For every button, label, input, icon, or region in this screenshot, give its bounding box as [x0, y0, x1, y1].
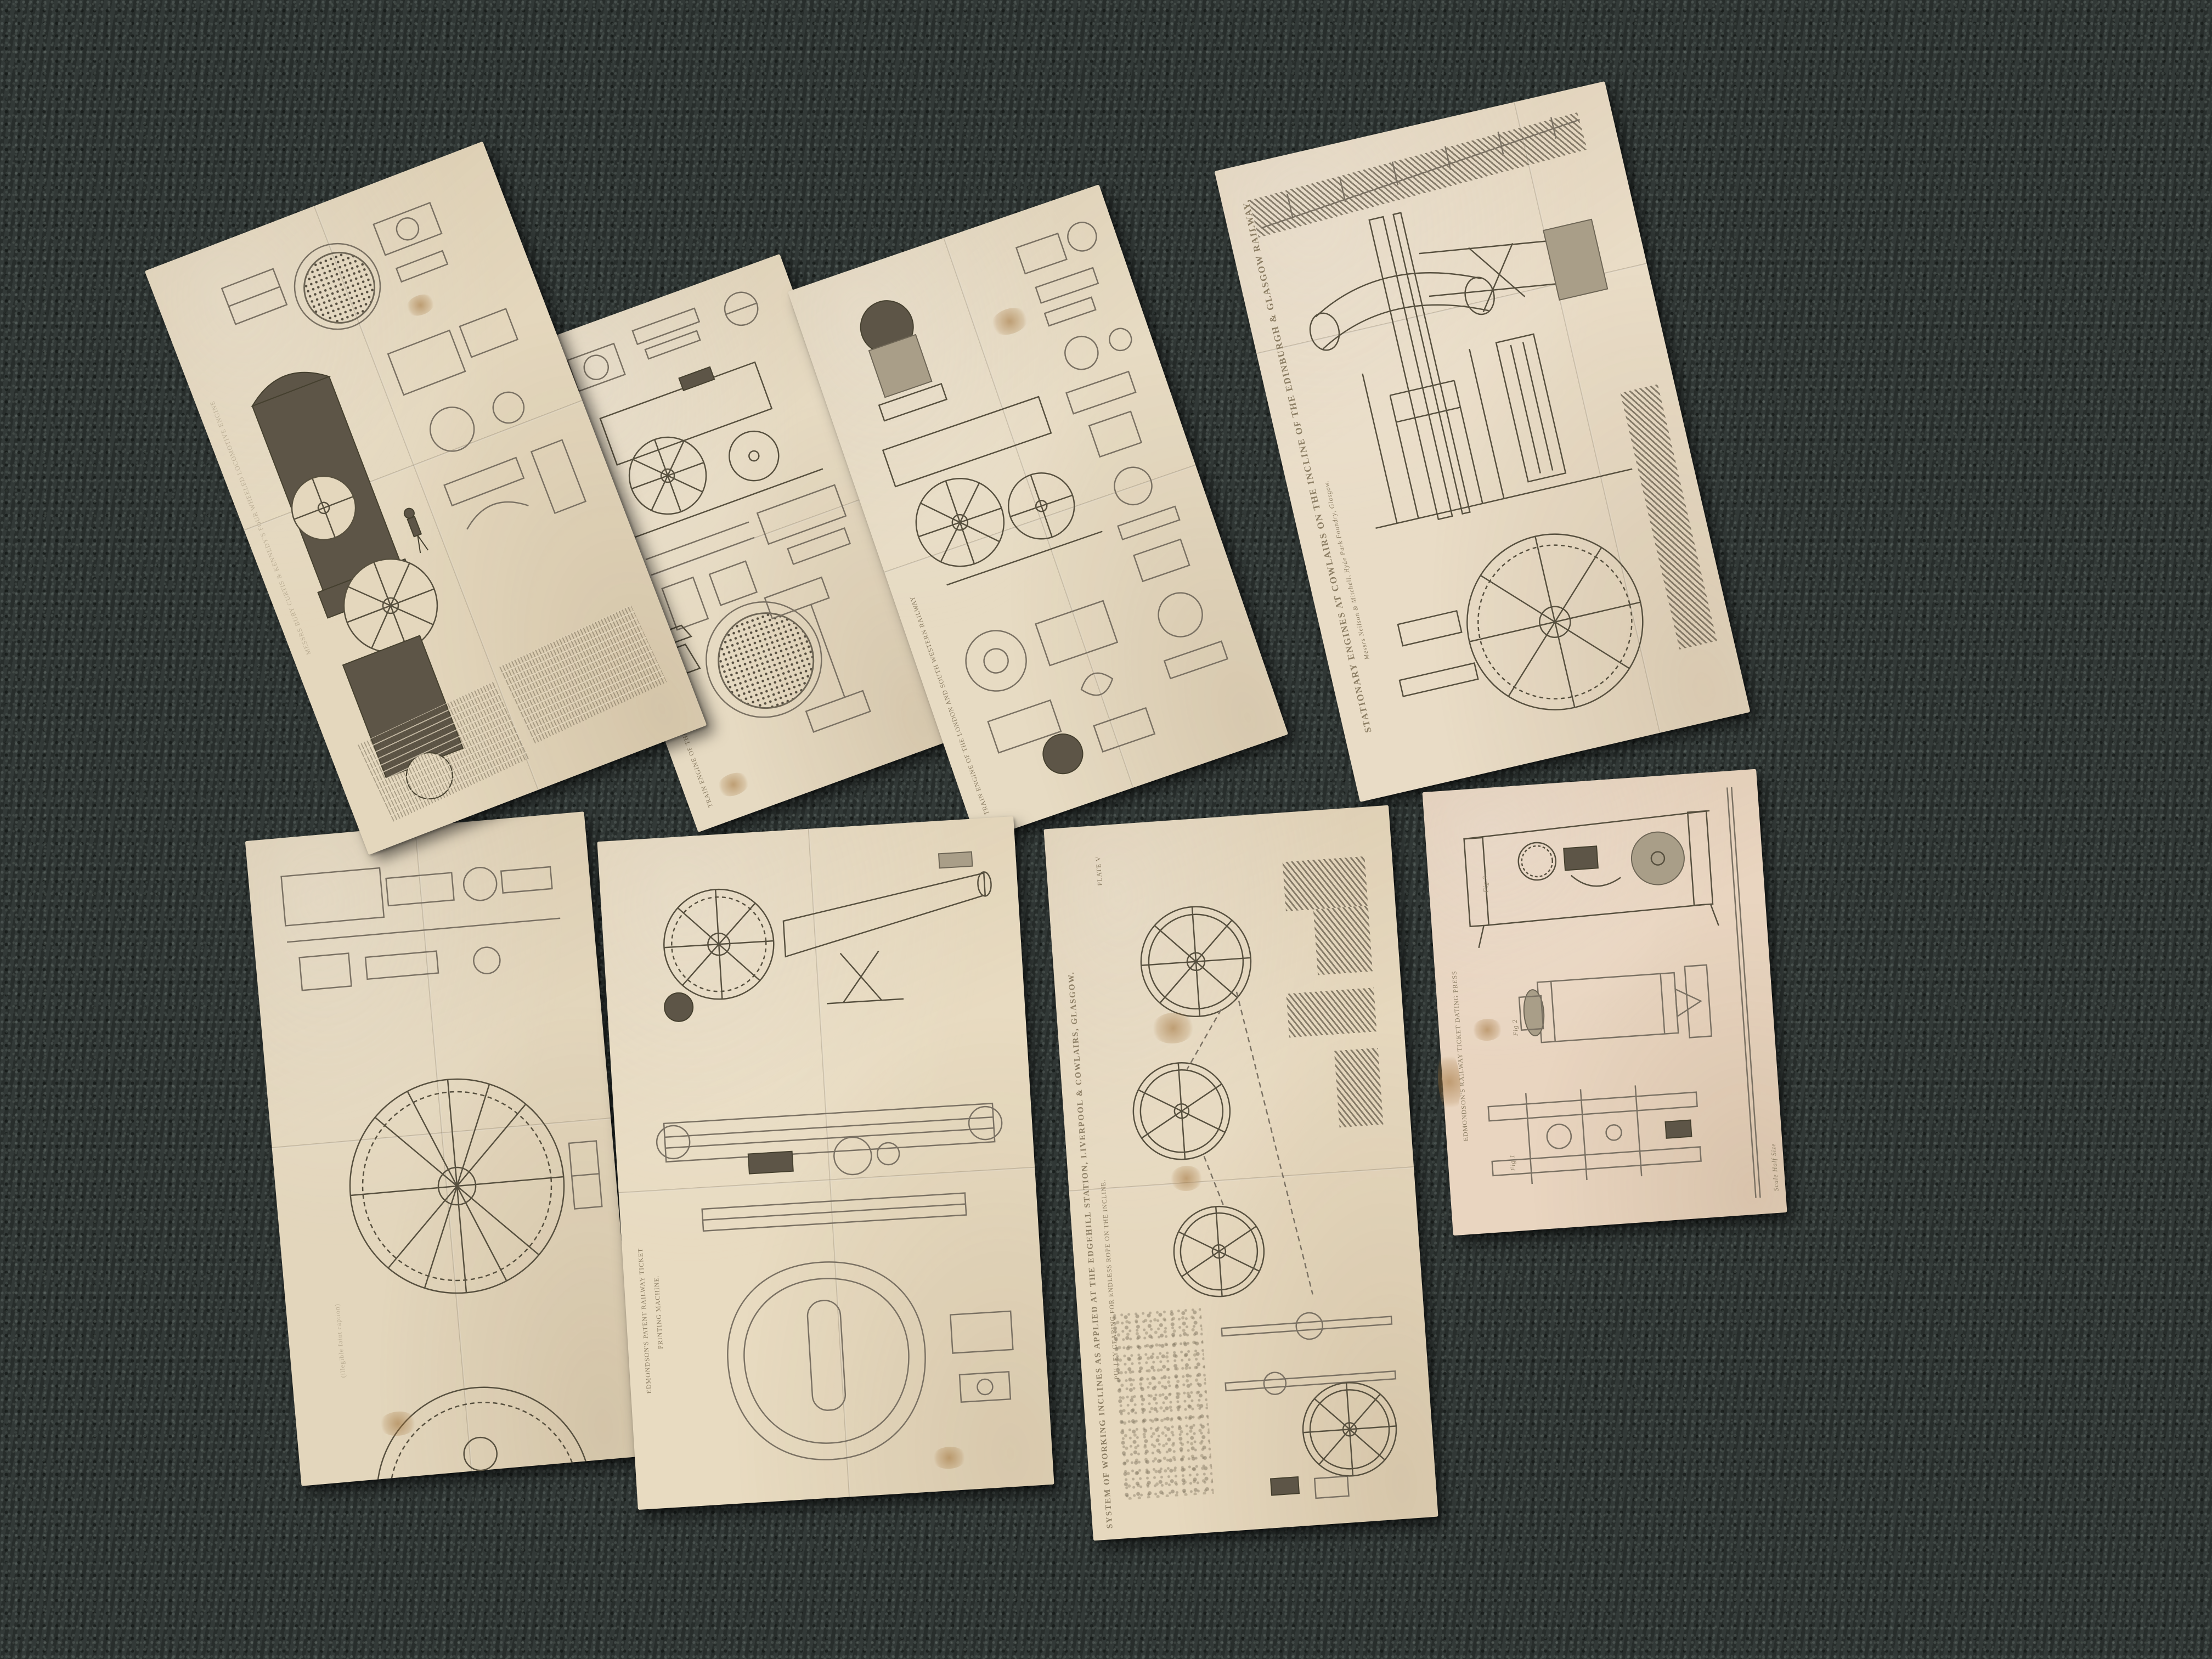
detail-column-right	[1015, 218, 1241, 680]
plate-incline-pulley-gearing: PLATE V	[1043, 805, 1438, 1541]
fence-posts	[1252, 111, 1588, 228]
fig1-label: Fig 1	[1508, 1154, 1517, 1171]
engraving-winding-engine	[1215, 81, 1751, 802]
plate-edmondson-printing-machine: EDMONDSON'S PATENT RAILWAY TICKET PRINTI…	[597, 816, 1054, 1510]
great-spur-wheel	[341, 1070, 573, 1302]
pulley-wheel-2	[1130, 1059, 1233, 1163]
frame-plate-outline	[722, 1256, 931, 1465]
fig3-label: Fig 3	[1481, 875, 1490, 893]
plate-border-rule	[1727, 787, 1760, 1198]
drive-gear	[657, 886, 778, 1022]
fig3-side-elevation	[1463, 811, 1719, 949]
fig2-front-elevation	[1518, 965, 1712, 1049]
pulley-wheel-3	[1171, 1204, 1267, 1300]
inking-cylinder	[780, 851, 998, 1006]
rubble-section	[1110, 1308, 1214, 1500]
masonry-pit-hatch	[1283, 856, 1368, 911]
horizontal-engine-top	[281, 853, 565, 991]
lower-figures	[958, 591, 1158, 793]
fig2-label: Fig 2	[1511, 1019, 1520, 1036]
domed-boiler	[847, 291, 946, 421]
engraving-printing-machine	[597, 816, 1054, 1510]
fig1-plan	[1487, 1081, 1702, 1187]
engraving-spur-wheel	[245, 811, 640, 1486]
plate-stationary-engines-cowlairs: STATIONARY ENGINES AT COWLAIRS ON THE IN…	[1215, 81, 1751, 802]
masonry-pit-hatch	[1313, 906, 1373, 975]
shaft-plans	[1221, 1307, 1403, 1504]
plate-edmondson-dating-press: Fig 3 Fig 2 Fig 1 EDMONDSON'S RAILWAY TI…	[1422, 769, 1787, 1236]
small-plan-figures	[950, 1311, 1016, 1402]
press-bed	[656, 1103, 1007, 1233]
lower-pulley-wheel	[1300, 1380, 1399, 1479]
side-bracket	[569, 1141, 602, 1209]
engineman-figure	[403, 507, 428, 554]
photo-of-engineering-plates-on-carpet: { "scene": { "description": "Photograph …	[0, 0, 2212, 1659]
masonry-pit-hatch	[1334, 1048, 1384, 1127]
plate-winding-drum-spur-wheel: (illegible faint caption)	[245, 811, 640, 1486]
beam-framing	[1289, 171, 1650, 538]
small-section-figures	[566, 287, 764, 391]
right-detail-figures	[388, 307, 585, 549]
engraving-dating-press	[1422, 769, 1787, 1236]
driving-wheels-elevation	[883, 391, 1102, 590]
upper-detail-figures	[220, 203, 461, 365]
pulley-wheel-1	[1137, 903, 1254, 1020]
masonry-pit-hatch	[1286, 988, 1376, 1037]
flywheel-gear	[1375, 517, 1660, 744]
